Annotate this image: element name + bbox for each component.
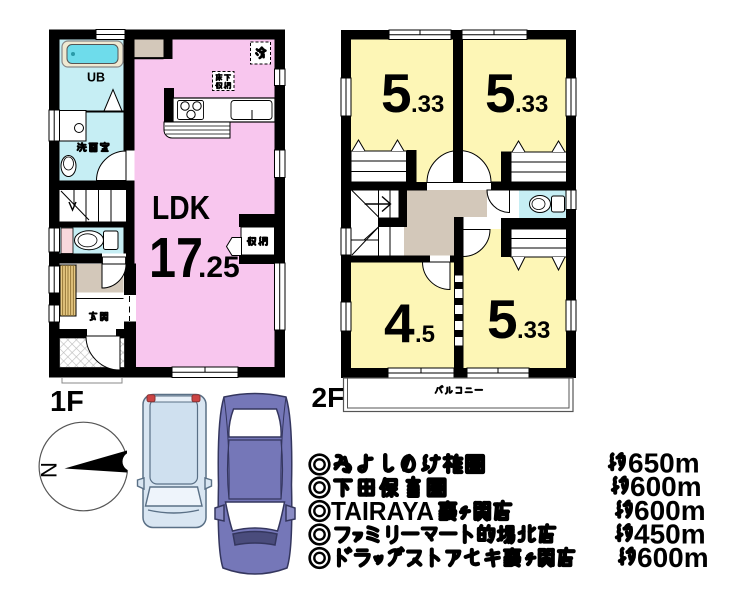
- svg-text:.25: .25: [198, 251, 240, 284]
- svg-text:5: 5: [381, 62, 412, 124]
- svg-text:17: 17: [149, 226, 203, 290]
- svg-text:5: 5: [487, 288, 518, 350]
- svg-text:2F: 2F: [312, 382, 345, 413]
- svg-text:.33: .33: [515, 91, 548, 118]
- svg-text:N: N: [37, 462, 62, 478]
- svg-text:5: 5: [485, 62, 516, 124]
- svg-text:LDK: LDK: [152, 189, 210, 226]
- svg-text:.33: .33: [411, 91, 444, 118]
- svg-text:1F: 1F: [50, 386, 84, 418]
- svg-text:TAIRAYA: TAIRAYA: [331, 496, 434, 526]
- svg-text:600m: 600m: [637, 542, 709, 573]
- svg-text:.33: .33: [517, 317, 550, 344]
- svg-text:.5: .5: [415, 321, 435, 348]
- svg-text:UB: UB: [87, 71, 105, 85]
- svg-text:4: 4: [384, 292, 415, 354]
